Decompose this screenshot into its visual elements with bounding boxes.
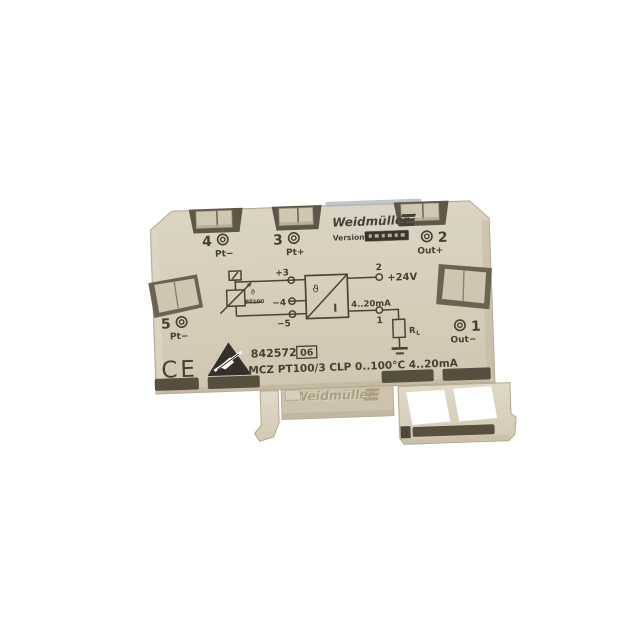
pin-label-plus3: +3 xyxy=(275,268,289,278)
terminal-label: Pt− xyxy=(215,249,234,260)
terminal-number: 4 xyxy=(202,234,213,250)
sensor-theta-label: ϑ xyxy=(251,288,256,296)
signal-range-label: 4..20mA xyxy=(351,299,391,310)
din-rail-foot: Weidmüller Weidmüller xyxy=(253,381,517,449)
sensor-type-label: PT100 xyxy=(245,299,265,306)
load-resistor-sub: L xyxy=(416,330,420,337)
clamp-window-right xyxy=(453,386,497,421)
clamp-opening-4 xyxy=(189,208,244,234)
clamp-window-left xyxy=(406,390,450,425)
clamp-opening-3 xyxy=(272,205,323,231)
clamp-slot-end xyxy=(400,426,410,438)
terminal-number: 1 xyxy=(471,319,481,335)
pin-label-minus5: −5 xyxy=(277,319,291,329)
weidmueller-trident-icon xyxy=(399,214,416,227)
pin-label-1: 1 xyxy=(376,316,383,326)
product-photo: Weidmüller Weidmüller xyxy=(0,0,640,640)
brand-logo-text: Weidmüller xyxy=(332,213,410,230)
wire-opening-1 xyxy=(435,262,494,311)
terminal-number: 5 xyxy=(161,316,171,332)
converter-current-label: I xyxy=(333,302,338,315)
terminal-block-module: Weidmüller Weidmüller xyxy=(0,0,640,640)
terminal-number: 3 xyxy=(273,232,283,248)
revision-number: 06 xyxy=(300,347,314,358)
terminal-label: Out+ xyxy=(417,246,443,257)
terminal-number: 2 xyxy=(438,230,448,246)
version-label: Version xyxy=(333,233,365,243)
terminal-label: Pt+ xyxy=(286,248,305,259)
pin-label-2: 2 xyxy=(376,263,383,273)
pin-label-minus4: −4 xyxy=(272,298,286,308)
supply-label: +24V xyxy=(387,272,418,284)
converter-theta-label: ϑ xyxy=(312,284,319,295)
embossed-brand: Weidmüller xyxy=(294,386,375,404)
embossed-trident-icon xyxy=(363,388,380,401)
foot-right-clamp xyxy=(398,382,517,444)
order-number: 842572 xyxy=(251,346,297,361)
terminal-label: Out− xyxy=(450,335,476,346)
terminal-label: Pt− xyxy=(170,332,189,343)
version-code-badge xyxy=(365,230,409,242)
ce-mark-text: CE xyxy=(161,356,198,383)
